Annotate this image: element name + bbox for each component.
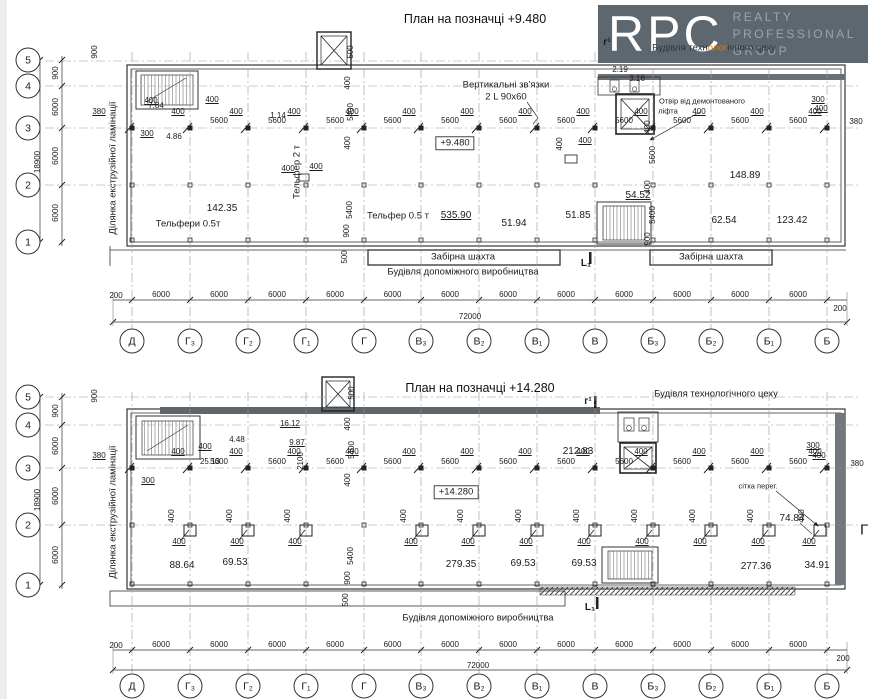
- grid-row-marker: 3: [16, 456, 41, 481]
- annotation-label: 72000: [459, 313, 481, 321]
- annotation-label: 5600: [615, 117, 633, 125]
- annotation-label: 400: [634, 448, 647, 456]
- grid-column-marker: В₃: [409, 329, 434, 354]
- annotation-label: 400: [288, 538, 301, 546]
- annotation-label: 5600: [615, 458, 633, 466]
- annotation-label: 900: [91, 389, 99, 402]
- annotation-label: 5600: [384, 458, 402, 466]
- grid-column-marker: Г: [352, 674, 377, 699]
- annotation-label: 6000: [52, 98, 60, 116]
- grid-column-marker: Г₃: [178, 329, 203, 354]
- annotation-label: 400: [171, 448, 184, 456]
- annotation-label: 500: [348, 386, 356, 399]
- annotation-label: 400: [460, 448, 473, 456]
- grid-column-marker: Б: [815, 674, 840, 699]
- grid-row-marker: 1: [16, 230, 41, 255]
- grid-row-marker: 5: [16, 385, 41, 410]
- annotation-label: 400: [747, 509, 755, 522]
- annotation-label: 400: [814, 105, 827, 113]
- annotation-label: 400: [812, 452, 825, 460]
- annotation-label: Ділянка екструзійної ламінації: [108, 445, 118, 578]
- grid-column-marker: В₁: [525, 329, 550, 354]
- annotation-label: 6000: [384, 291, 402, 299]
- annotation-label: 400: [461, 538, 474, 546]
- annotation-label: 6000: [499, 291, 517, 299]
- annotation-label: 5600: [326, 458, 344, 466]
- annotation-label: 5600: [731, 458, 749, 466]
- annotation-label: 500: [347, 45, 355, 58]
- grid-column-marker: Г₃: [178, 674, 203, 699]
- annotation-label: 88.64: [169, 561, 194, 571]
- annotation-label: 5400: [649, 206, 657, 224]
- tech-label-post: ічного цеху: [727, 43, 776, 54]
- grid-row-marker: 5: [16, 48, 41, 73]
- annotation-label: 69.53: [222, 558, 247, 568]
- annotation-label: 400: [144, 97, 157, 105]
- annotation-label: 380: [849, 118, 862, 126]
- grid-column-marker: Г₁: [294, 329, 319, 354]
- annotation-label: 400: [751, 538, 764, 546]
- annotation-label: 400: [692, 448, 705, 456]
- annotation-label: Отвір від демонтованого: [659, 97, 745, 105]
- tech-label-pre: Будівля техн: [652, 43, 708, 54]
- annotation-label: 5400: [347, 103, 355, 121]
- annotation-label: сітка перег.: [738, 482, 777, 490]
- annotation-label: 6000: [52, 546, 60, 564]
- annotation-label: 380: [850, 460, 863, 468]
- plan2-stair-middle: [602, 547, 658, 583]
- annotation-label: 62.54: [711, 216, 736, 226]
- annotation-label: 200: [833, 305, 846, 313]
- annotation-label: 2100: [297, 452, 305, 470]
- grid-column-marker: Б₂: [699, 674, 724, 699]
- grid-column-marker: Б₃: [641, 329, 666, 354]
- annotation-label: 400: [205, 96, 218, 104]
- annotation-label: г¹: [603, 38, 611, 48]
- grid-column-marker: Г₂: [236, 329, 261, 354]
- annotation-label: 6000: [499, 641, 517, 649]
- annotation-label: 500: [341, 250, 349, 263]
- grid-row-marker: 2: [16, 513, 41, 538]
- annotation-label: 200: [109, 292, 122, 300]
- annotation-label: 400: [400, 509, 408, 522]
- annotation-label: 6000: [789, 641, 807, 649]
- annotation-label: 4.48: [229, 436, 245, 444]
- annotation-label: 212.83: [563, 447, 594, 457]
- grid-column-marker: В₂: [467, 329, 492, 354]
- annotation-label: 200: [836, 655, 849, 663]
- grid-column-marker: Д: [120, 329, 145, 354]
- annotation-label: 5600: [557, 458, 575, 466]
- annotation-label: 400: [692, 108, 705, 116]
- annotation-label: 380: [92, 452, 105, 460]
- annotation-label: 400: [172, 538, 185, 546]
- annotation-label: 5400: [347, 547, 355, 565]
- annotation-label: Г: [860, 523, 868, 538]
- annotation-label: 5600: [268, 458, 286, 466]
- logo-word-professional: PROFESSIONAL: [733, 26, 856, 43]
- annotation-label: 6000: [615, 291, 633, 299]
- annotation-label: 5600: [499, 458, 517, 466]
- annotation-label: 25.13: [200, 458, 220, 466]
- annotation-label: 200: [109, 642, 122, 650]
- annotation-label: Ділянка екструзійної ламінації: [108, 101, 118, 234]
- annotation-label: 535.90: [441, 211, 472, 221]
- annotation-label: 400: [518, 108, 531, 116]
- grid-column-marker: В: [583, 674, 608, 699]
- annotation-label: 400: [344, 76, 352, 89]
- annotation-label: г¹: [584, 397, 592, 407]
- annotation-label: 6000: [557, 641, 575, 649]
- annotation-label: 400: [168, 509, 176, 522]
- annotation-label: 6000: [268, 641, 286, 649]
- grid-row-marker: 2: [16, 173, 41, 198]
- annotation-label: 400: [457, 509, 465, 522]
- annotation-label: L₁: [581, 259, 591, 269]
- annotation-label: 148.89: [730, 171, 761, 181]
- grid-row-marker: 4: [16, 413, 41, 438]
- annotation-label: 6000: [52, 437, 60, 455]
- annotation-label: 900: [52, 66, 60, 79]
- annotation-label: 400: [750, 448, 763, 456]
- annotation-label: 6000: [210, 641, 228, 649]
- annotation-label: 6000: [731, 641, 749, 649]
- annotation-label: 5400: [346, 201, 354, 219]
- annotation-label: 400: [556, 137, 564, 150]
- annotation-label: 400: [198, 443, 211, 451]
- grid-column-marker: Д: [120, 674, 145, 699]
- annotation-label: 400: [750, 108, 763, 116]
- annotation-label: 6000: [441, 291, 459, 299]
- annotation-label: 400: [693, 538, 706, 546]
- annotation-label: 2 L 90x60: [485, 92, 526, 102]
- annotation-label: 400: [171, 108, 184, 116]
- annotation-label: Тельфери 0.5т: [156, 219, 221, 229]
- annotation-label: 380: [92, 108, 105, 116]
- annotation-label: 900: [344, 571, 352, 584]
- annotation-label: 5600: [673, 117, 691, 125]
- annotation-label: 5600: [384, 117, 402, 125]
- annotation-label: 400: [344, 417, 352, 430]
- annotation-label: 400: [230, 538, 243, 546]
- annotation-label: 6000: [52, 487, 60, 505]
- logo-word-realty: REALTY: [733, 9, 856, 26]
- annotation-label: 400: [518, 448, 531, 456]
- annotation-label: 279.35: [446, 560, 477, 570]
- annotation-label: 6000: [152, 641, 170, 649]
- annotation-label: Будівля технологічного цеху: [654, 389, 778, 399]
- annotation-label: 5600: [499, 117, 517, 125]
- annotation-label: 5600: [557, 117, 575, 125]
- plan2-wc: [618, 412, 658, 442]
- annotation-label: 6000: [52, 147, 60, 165]
- grid-column-marker: Г: [352, 329, 377, 354]
- grid-column-marker: В₂: [467, 674, 492, 699]
- annotation-label: 400: [573, 509, 581, 522]
- annotation-label: 900: [343, 224, 351, 237]
- annotation-label: 277.36: [741, 562, 772, 572]
- grid-row-marker: 4: [16, 74, 41, 99]
- annotation-label: 900: [644, 232, 652, 245]
- annotation-label: 400: [287, 108, 300, 116]
- annotation-label: 400: [519, 538, 532, 546]
- annotation-label: 400: [404, 538, 417, 546]
- grid-column-marker: В: [583, 329, 608, 354]
- annotation-label: 34.91: [804, 561, 829, 571]
- grid-column-marker: Г₁: [294, 674, 319, 699]
- annotation-label: 6000: [152, 291, 170, 299]
- grid-column-marker: Б₁: [757, 329, 782, 354]
- annotation-label: 400: [309, 163, 322, 171]
- annotation-label: 3.16: [629, 75, 645, 83]
- annotation-label: 142.35: [207, 204, 238, 214]
- annotation-label: 900: [52, 404, 60, 417]
- annotation-label: 5600: [649, 146, 657, 164]
- plan2-stair-top-left: [136, 416, 200, 459]
- annotation-label: 6000: [789, 291, 807, 299]
- grid-column-marker: Б₁: [757, 674, 782, 699]
- annotation-label: 400: [402, 448, 415, 456]
- annotation-label: 5600: [731, 117, 749, 125]
- plan1-title: План на позначці +9.480: [404, 13, 546, 26]
- annotation-label: 6000: [326, 641, 344, 649]
- annotation-label: 4.86: [166, 133, 182, 141]
- annotation-label: 18900: [34, 151, 42, 173]
- annotation-label: 300: [811, 96, 824, 104]
- annotation-label: 400: [578, 137, 591, 145]
- annotation-label: 6000: [615, 641, 633, 649]
- annotation-label: 6000: [441, 641, 459, 649]
- annotation-label: 400: [344, 473, 352, 486]
- annotation-label: 6000: [268, 291, 286, 299]
- annotation-label: 400: [576, 108, 589, 116]
- annotation-label: 900: [91, 45, 99, 58]
- annotation-label: 5600: [210, 117, 228, 125]
- annotation-label: 74.84: [779, 514, 804, 524]
- annotation-label: 6000: [673, 641, 691, 649]
- annotation-label: 5600: [326, 117, 344, 125]
- grid-column-marker: Б: [815, 329, 840, 354]
- annotation-label: 400: [226, 509, 234, 522]
- annotation-label: 400: [344, 136, 352, 149]
- grid-column-marker: В₃: [409, 674, 434, 699]
- plan2-title: План на позначці +14.280: [405, 382, 554, 395]
- annotation-label: 6000: [52, 204, 60, 222]
- annotation-label: 6000: [731, 291, 749, 299]
- annotation-label: 5400: [348, 441, 356, 459]
- annotation-label: 400: [460, 108, 473, 116]
- annotation-label: 69.53: [510, 559, 535, 569]
- annotation-label: 51.85: [565, 211, 590, 221]
- annotation-label: 400: [634, 108, 647, 116]
- annotation-label: Будівля допоміжного виробництва: [387, 267, 538, 277]
- annotation-label: Тельфер 0.5 т: [367, 211, 429, 221]
- annotation-label: 300: [140, 130, 153, 138]
- annotation-label: 400: [229, 108, 242, 116]
- annotation-label: 400: [281, 165, 294, 173]
- tech-label-highlight: олог: [708, 43, 727, 54]
- annotation-label: 51.94: [501, 219, 526, 229]
- annotation-label: 400: [229, 448, 242, 456]
- annotation-label: Забірна шахта: [431, 252, 495, 262]
- annotation-label: 5600: [441, 458, 459, 466]
- annotation-label: 123.42: [777, 216, 808, 226]
- annotation-label: 300: [806, 442, 819, 450]
- rpc-logo: RPC REALTY PROFESSIONAL GROUP: [598, 5, 868, 63]
- grid-column-marker: Г₂: [236, 674, 261, 699]
- annotation-label: 6000: [384, 641, 402, 649]
- annotation-label: 1.14: [270, 112, 286, 120]
- annotation-label: 6000: [673, 291, 691, 299]
- annotation-label: 5600: [789, 458, 807, 466]
- annotation-label: 6000: [326, 291, 344, 299]
- annotation-label: 400: [644, 120, 652, 133]
- annotation-label: 500: [342, 593, 350, 606]
- annotation-label: 400: [802, 538, 815, 546]
- annotation-label: 72000: [467, 662, 489, 670]
- grid-row-marker: 3: [16, 116, 41, 141]
- annotation-label: 6000: [557, 291, 575, 299]
- annotation-label: 16.12: [280, 420, 300, 428]
- annotation-label: 400: [689, 509, 697, 522]
- annotation-label: 5600: [673, 458, 691, 466]
- annotation-label: 54.52: [625, 191, 650, 201]
- annotation-label: L₁: [585, 603, 595, 613]
- annotation-label: 400: [631, 509, 639, 522]
- tech-building-label-plan1: Будівля технологічного цеху: [652, 43, 776, 54]
- blueprint-canvas: План на позначці +9.480 План на позначці…: [0, 0, 871, 699]
- plan2-aux-building: [110, 591, 565, 606]
- annotation-label: 69.53: [571, 559, 596, 569]
- grid-column-marker: В₁: [525, 674, 550, 699]
- annotation-label: 9.87: [289, 439, 305, 447]
- annotation-label: 5600: [441, 117, 459, 125]
- annotation-label: Вертикальні зв'язки: [463, 80, 550, 90]
- plan1-elevation-box: +9.480: [435, 136, 474, 150]
- annotation-label: ліфта: [658, 107, 678, 115]
- annotation-label: 400: [284, 509, 292, 522]
- annotation-label: 400: [635, 538, 648, 546]
- annotation-label: 2.19: [612, 66, 628, 74]
- grid-column-marker: Б₃: [641, 674, 666, 699]
- annotation-label: Будівля допоміжного виробництва: [402, 613, 553, 623]
- annotation-label: 18900: [34, 489, 42, 511]
- annotation-label: 5600: [789, 117, 807, 125]
- annotation-label: 400: [515, 509, 523, 522]
- annotation-label: +14.280: [434, 485, 479, 499]
- annotation-label: 400: [402, 108, 415, 116]
- annotation-label: 300: [141, 477, 154, 485]
- grid-row-marker: 1: [16, 573, 41, 598]
- annotation-label: Забірна шахта: [679, 252, 743, 262]
- annotation-label: 6000: [210, 291, 228, 299]
- annotation-label: 400: [577, 538, 590, 546]
- grid-column-marker: Б₂: [699, 329, 724, 354]
